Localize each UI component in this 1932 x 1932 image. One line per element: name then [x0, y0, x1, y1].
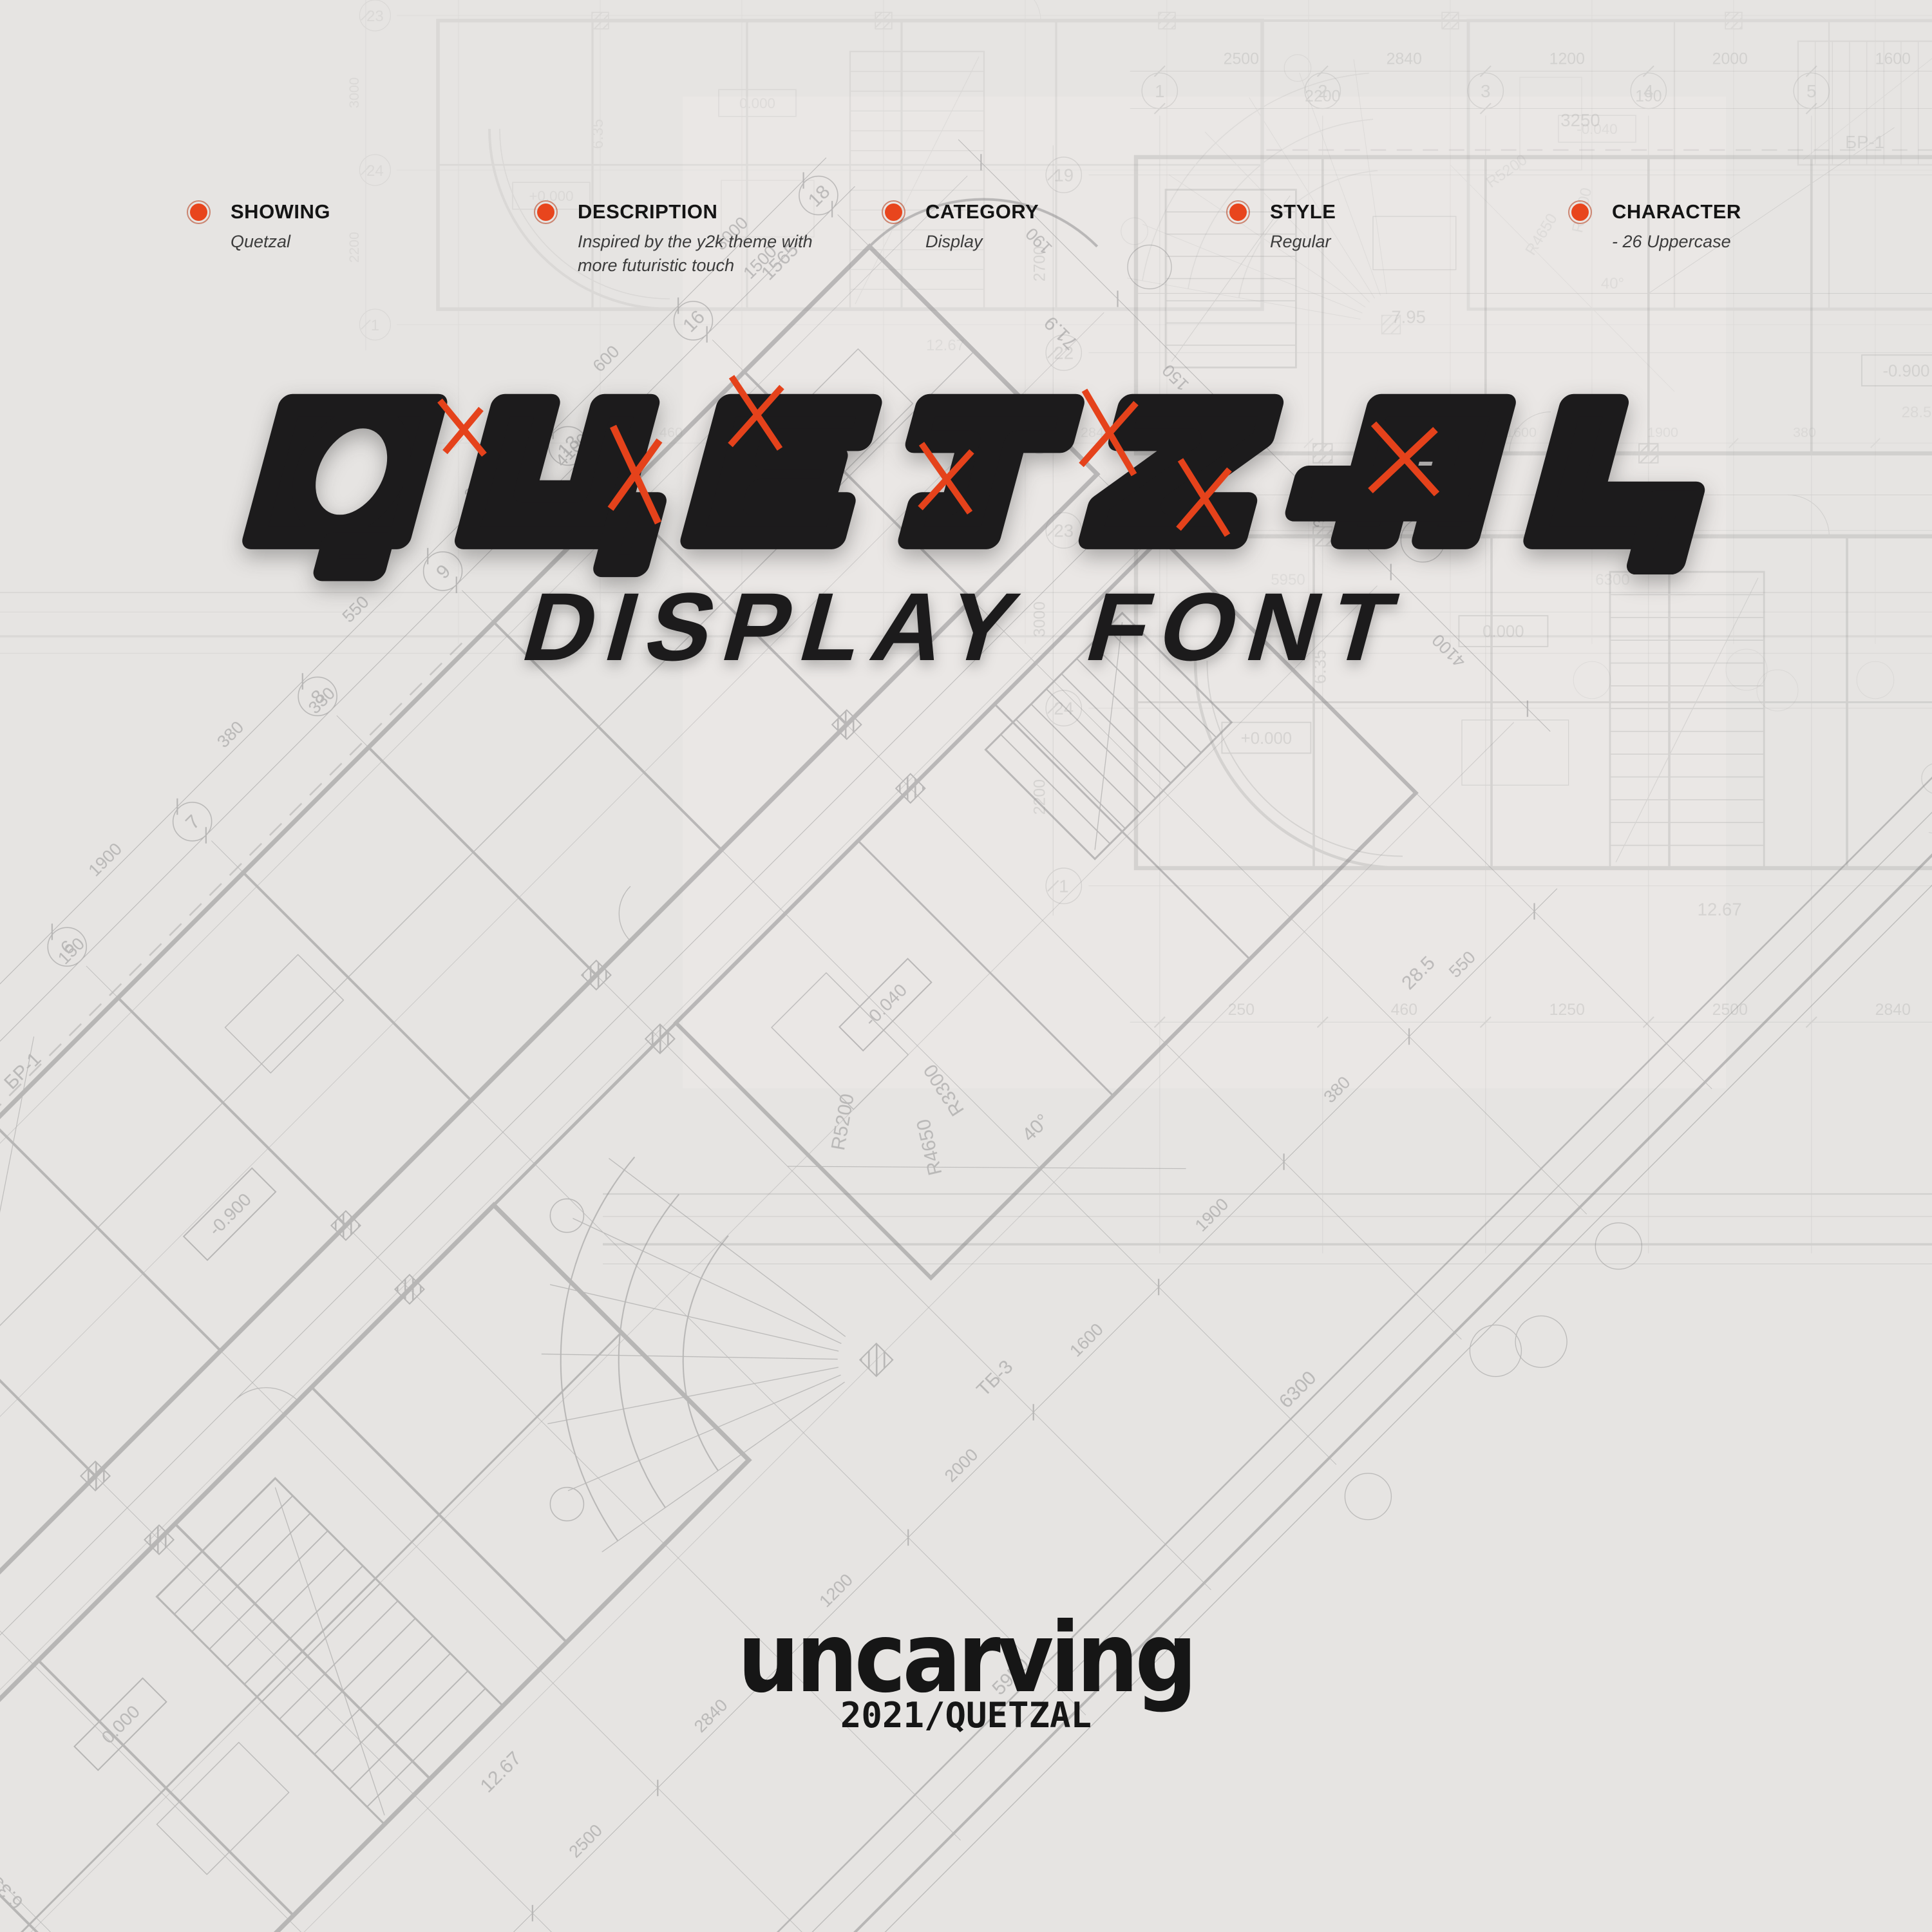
spec-label: DESCRIPTION [578, 200, 813, 224]
bullet-dot-icon [190, 204, 207, 221]
spec-col-character: CHARACTER - 26 Uppercase [1571, 200, 1741, 254]
glyph-A [1289, 405, 1504, 538]
title-wordmark [227, 379, 1740, 595]
spec-col-description: DESCRIPTION Inspired by the y2k theme wi… [537, 200, 813, 278]
spec-value: Display [925, 224, 1039, 254]
spec-value: Regular [1270, 224, 1336, 254]
spec-value: - 26 Uppercase [1612, 224, 1741, 254]
spec-col-showing: SHOWING Quetzal [190, 200, 330, 254]
spec-label: STYLE [1270, 200, 1336, 224]
spec-col-category: CATEGORY Display [885, 200, 1039, 254]
bullet-dot-icon [885, 204, 902, 221]
bullet-dot-icon [1571, 204, 1589, 221]
spec-value: Inspired by the y2k theme with [578, 224, 813, 254]
spec-value: Quetzal [231, 224, 330, 254]
credit-line: 2021/QUETZAL [0, 1698, 1932, 1734]
spec-label: CATEGORY [925, 200, 1039, 224]
bullet-dot-icon [1229, 204, 1247, 221]
glyph-U [459, 405, 681, 565]
spec-label: CHARACTER [1612, 200, 1741, 224]
spec-label: SHOWING [231, 200, 330, 224]
spec-col-style: STYLE Regular [1229, 200, 1336, 254]
glyph-Q [245, 405, 435, 570]
glyph-E [692, 405, 871, 538]
glyph-T [891, 405, 1073, 538]
glyph-Z [1090, 405, 1272, 538]
subtitle: DISPLAY FONT [0, 578, 1932, 675]
font-specimen-poster: 1234567891316181922232412500284012002000… [0, 0, 1932, 1932]
foundry-logo: uncarving [0, 1610, 1932, 1707]
spec-header: SHOWING Quetzal DESCRIPTION Inspired by … [0, 0, 1932, 303]
glyph-L [1528, 405, 1716, 563]
bullet-dot-icon [537, 204, 554, 221]
spec-value: more futuristic touch [578, 254, 813, 278]
